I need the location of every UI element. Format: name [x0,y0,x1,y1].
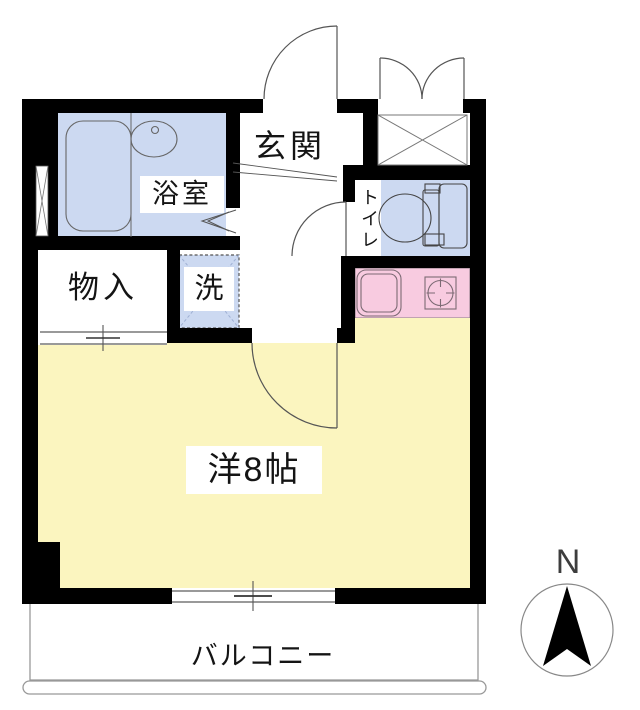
room-label-bathroom: 浴室 [140,176,224,213]
wall-entrance-closet [363,113,378,165]
wall-kitchen-left [341,256,355,343]
wall-storage-right [167,250,180,330]
floor-plan: 玄関 浴室 トイレ 物入 洗 洋8帖 バルコニー N [0,0,640,710]
floor-plan-drawing [0,0,640,710]
room-label-entrance: 玄関 [248,126,332,166]
room-label-main-room: 洋8帖 [186,446,322,494]
bathroom-floor [58,113,226,237]
wall-bath-right-upper [226,113,240,208]
wall-bottom-right [335,588,470,604]
wall-left [22,99,38,604]
shoe-closet [378,115,467,165]
wall-bottom-left [38,588,172,604]
wall-room-top [167,328,252,343]
wall-window-slot [36,166,48,236]
closet-double-doors [380,58,464,99]
wall-bath-bottom [38,236,240,250]
wall-toilet-top [343,165,486,180]
compass-north-label: N [550,544,586,580]
wall-toilet-left-stub [343,180,355,202]
compass [521,584,613,676]
wall-toilet-bottom [341,256,486,268]
wall-top-mid [337,99,378,113]
wall-top-left [22,99,263,113]
entrance-door-arc [264,26,337,99]
room-label-toilet: トイレ [356,183,382,255]
room-label-storage: 物入 [55,266,151,308]
toilet-door-arc [292,202,346,256]
room-label-balcony: バルコニー [158,638,368,674]
room-label-laundry: 洗 [184,267,234,311]
